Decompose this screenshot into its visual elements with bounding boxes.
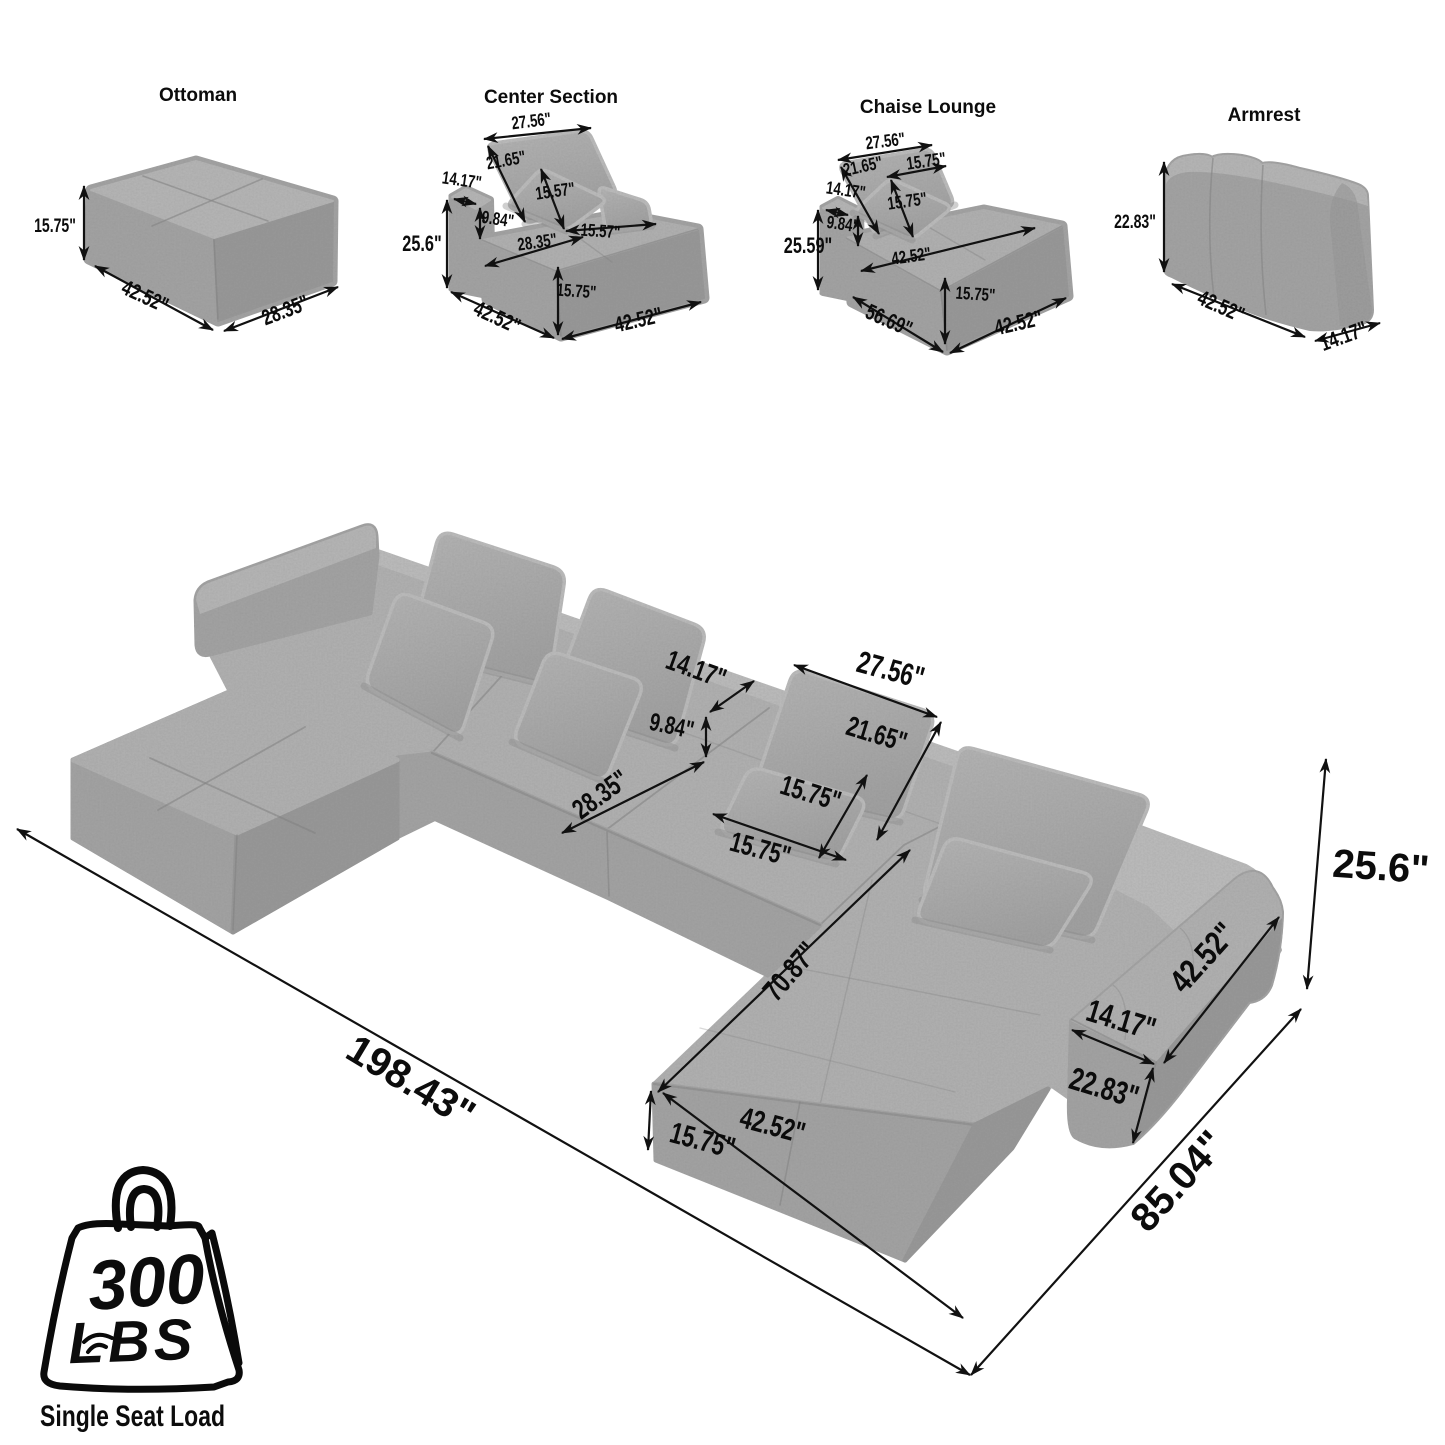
svg-text:Ottoman: Ottoman <box>159 85 237 106</box>
svg-text:22.83": 22.83" <box>1114 211 1156 233</box>
svg-text:Chaise Lounge: Chaise Lounge <box>860 97 996 118</box>
svg-text:15.57": 15.57" <box>580 221 621 243</box>
svg-text:25.59": 25.59" <box>784 234 832 259</box>
svg-text:15.75": 15.75" <box>34 215 76 237</box>
svg-text:15.75": 15.75" <box>556 281 597 303</box>
svg-text:Armrest: Armrest <box>1228 105 1302 126</box>
svg-text:Single Seat Load: Single Seat Load <box>40 1400 225 1433</box>
svg-text:Center Section: Center Section <box>484 87 618 108</box>
svg-text:15.75": 15.75" <box>955 284 996 306</box>
svg-text:25.6": 25.6" <box>1331 842 1431 893</box>
svg-text:25.6": 25.6" <box>402 232 441 257</box>
